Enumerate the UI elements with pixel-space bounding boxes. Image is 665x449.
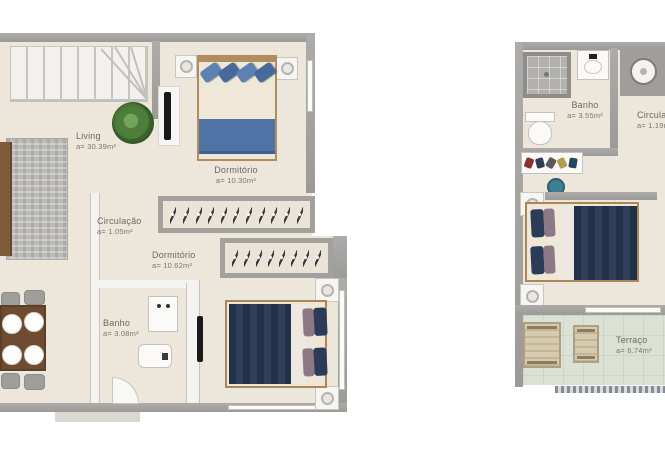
wall-bedroom-top — [545, 192, 657, 200]
room-area: a= 1.19m² — [637, 121, 665, 130]
terrace-railing — [555, 386, 665, 393]
pillow — [313, 307, 327, 336]
nightstand — [276, 57, 298, 80]
laundry-area — [620, 48, 665, 96]
pillow-pair — [302, 307, 328, 338]
wall-bathroom-circulation — [610, 48, 618, 150]
blanket — [229, 304, 291, 384]
entry-threshold — [55, 412, 140, 422]
plate — [24, 345, 44, 365]
room-name: Dormitório — [152, 250, 196, 260]
shelf-item — [524, 157, 535, 169]
shelf-with-items — [521, 152, 583, 174]
bed-dormitorio-2 — [225, 300, 327, 388]
hanger-icon — [232, 248, 238, 268]
dining-chair — [1, 373, 20, 389]
floorplan-image: Living a= 30.39m² Dormitório a= 10.30m² … — [0, 0, 665, 449]
wall-closet-corner — [333, 236, 347, 280]
hanger-icon — [196, 205, 202, 225]
window-bedroom1 — [307, 60, 313, 112]
lamp — [321, 284, 334, 297]
nightstand — [175, 55, 197, 78]
room-area: a= 10.62m² — [152, 261, 196, 270]
hanger-icon — [303, 248, 309, 268]
lamp — [180, 60, 193, 73]
bathroom-sink — [148, 296, 178, 332]
pillow — [313, 347, 327, 376]
lamp — [281, 62, 294, 75]
hanger-icon — [244, 248, 250, 268]
wall-bottom-left — [0, 403, 200, 412]
hanger-icon — [279, 248, 285, 268]
room-label-banho: Banho a= 3.55m² — [560, 100, 610, 121]
toilet — [138, 344, 172, 368]
window-bedroom2 — [339, 290, 345, 390]
toilet — [525, 112, 555, 146]
hanger-icon — [271, 205, 277, 225]
room-area: a= 10.30m² — [201, 176, 271, 185]
room-name: Dormitório — [214, 165, 258, 175]
hanger-icon — [170, 205, 176, 225]
room-label-banho: Banho a= 3.08m² — [103, 318, 139, 339]
bed-dormitorio-1 — [197, 55, 277, 161]
room-name: Banho — [571, 100, 598, 110]
floor-plan-left: Living a= 30.39m² Dormitório a= 10.30m² … — [0, 28, 352, 428]
stairs-winder-lines — [101, 47, 147, 99]
stairs — [10, 46, 148, 100]
room-area: a= 1.05m² — [97, 227, 142, 236]
pillow — [543, 208, 555, 237]
room-label-circulacao: Circulação a= 1.05m² — [97, 216, 142, 237]
plate — [2, 314, 22, 334]
hanger-icon — [268, 248, 274, 268]
hanger-icon — [233, 205, 239, 225]
window-terrace — [585, 307, 661, 313]
room-name: Circulação — [97, 216, 142, 226]
hanger-icon — [259, 205, 265, 225]
closet-dormitorio-2 — [220, 238, 333, 278]
rug — [6, 138, 68, 260]
hanger-icon — [297, 205, 303, 225]
hanger-icon — [246, 205, 252, 225]
hanger-icon — [221, 205, 227, 225]
tv-icon — [164, 92, 171, 140]
plant — [112, 102, 154, 144]
pillow — [543, 245, 555, 274]
pillow — [253, 61, 277, 83]
pillow-pair — [302, 347, 328, 378]
blanket — [574, 206, 637, 280]
lounge-chair — [523, 322, 561, 368]
room-label-living: Living a= 30.39m² — [76, 131, 116, 152]
room-label-circulacao: Circulação a= 1.19m² — [637, 110, 665, 131]
room-name: Banho — [103, 318, 130, 328]
washing-machine — [630, 58, 657, 85]
hanger-icon — [256, 248, 262, 268]
shelf-item — [556, 157, 567, 169]
toilet-bowl — [528, 121, 552, 145]
floor-plan-right: Banho a= 3.55m² Circulação a= 1.19m² Ter… — [515, 40, 665, 395]
bed-dormitorio — [525, 202, 639, 282]
room-label-terraco: Terraço a= 6.74m² — [616, 335, 652, 356]
lamp — [321, 392, 334, 405]
hanger-icon — [315, 248, 321, 268]
room-area: a= 3.08m² — [103, 329, 139, 338]
shelf-item — [568, 157, 578, 168]
sofa — [0, 142, 12, 256]
nightstand — [315, 278, 339, 302]
dining-chair — [24, 374, 45, 390]
bed-sheet — [559, 206, 574, 280]
room-label-dormitorio-2: Dormitório a= 10.62m² — [152, 250, 196, 271]
blanket — [199, 119, 275, 154]
hanger-icon — [183, 205, 189, 225]
hanger-icon — [291, 248, 297, 268]
hanger-icon — [284, 205, 290, 225]
hanger-icon — [208, 205, 214, 225]
pillow-pair — [530, 208, 556, 239]
room-label-dormitorio-1: Dormitório a= 10.30m² — [201, 165, 271, 186]
room-area: a= 30.39m² — [76, 142, 116, 151]
room-name: Terraço — [616, 335, 647, 345]
shower — [523, 52, 571, 98]
pillow-pair — [530, 245, 556, 276]
wall-bathroom-top — [90, 280, 200, 288]
lounge-chair — [573, 325, 599, 363]
shelf-item — [535, 157, 545, 169]
bathroom-sink — [577, 50, 609, 80]
wall-right-upper — [306, 33, 315, 193]
room-name: Circulação — [637, 110, 665, 120]
tv-icon — [197, 316, 203, 362]
lamp — [526, 290, 539, 303]
shelf-item — [545, 157, 557, 170]
plate — [2, 345, 22, 365]
nightstand — [315, 386, 339, 410]
room-name: Living — [76, 131, 101, 141]
dining-chair — [24, 290, 45, 305]
plate — [24, 312, 44, 332]
room-area: a= 6.74m² — [616, 346, 652, 355]
closet-dormitorio-1 — [158, 196, 315, 233]
room-area: a= 3.55m² — [560, 111, 610, 120]
window-bedroom2-bottom — [228, 405, 328, 410]
